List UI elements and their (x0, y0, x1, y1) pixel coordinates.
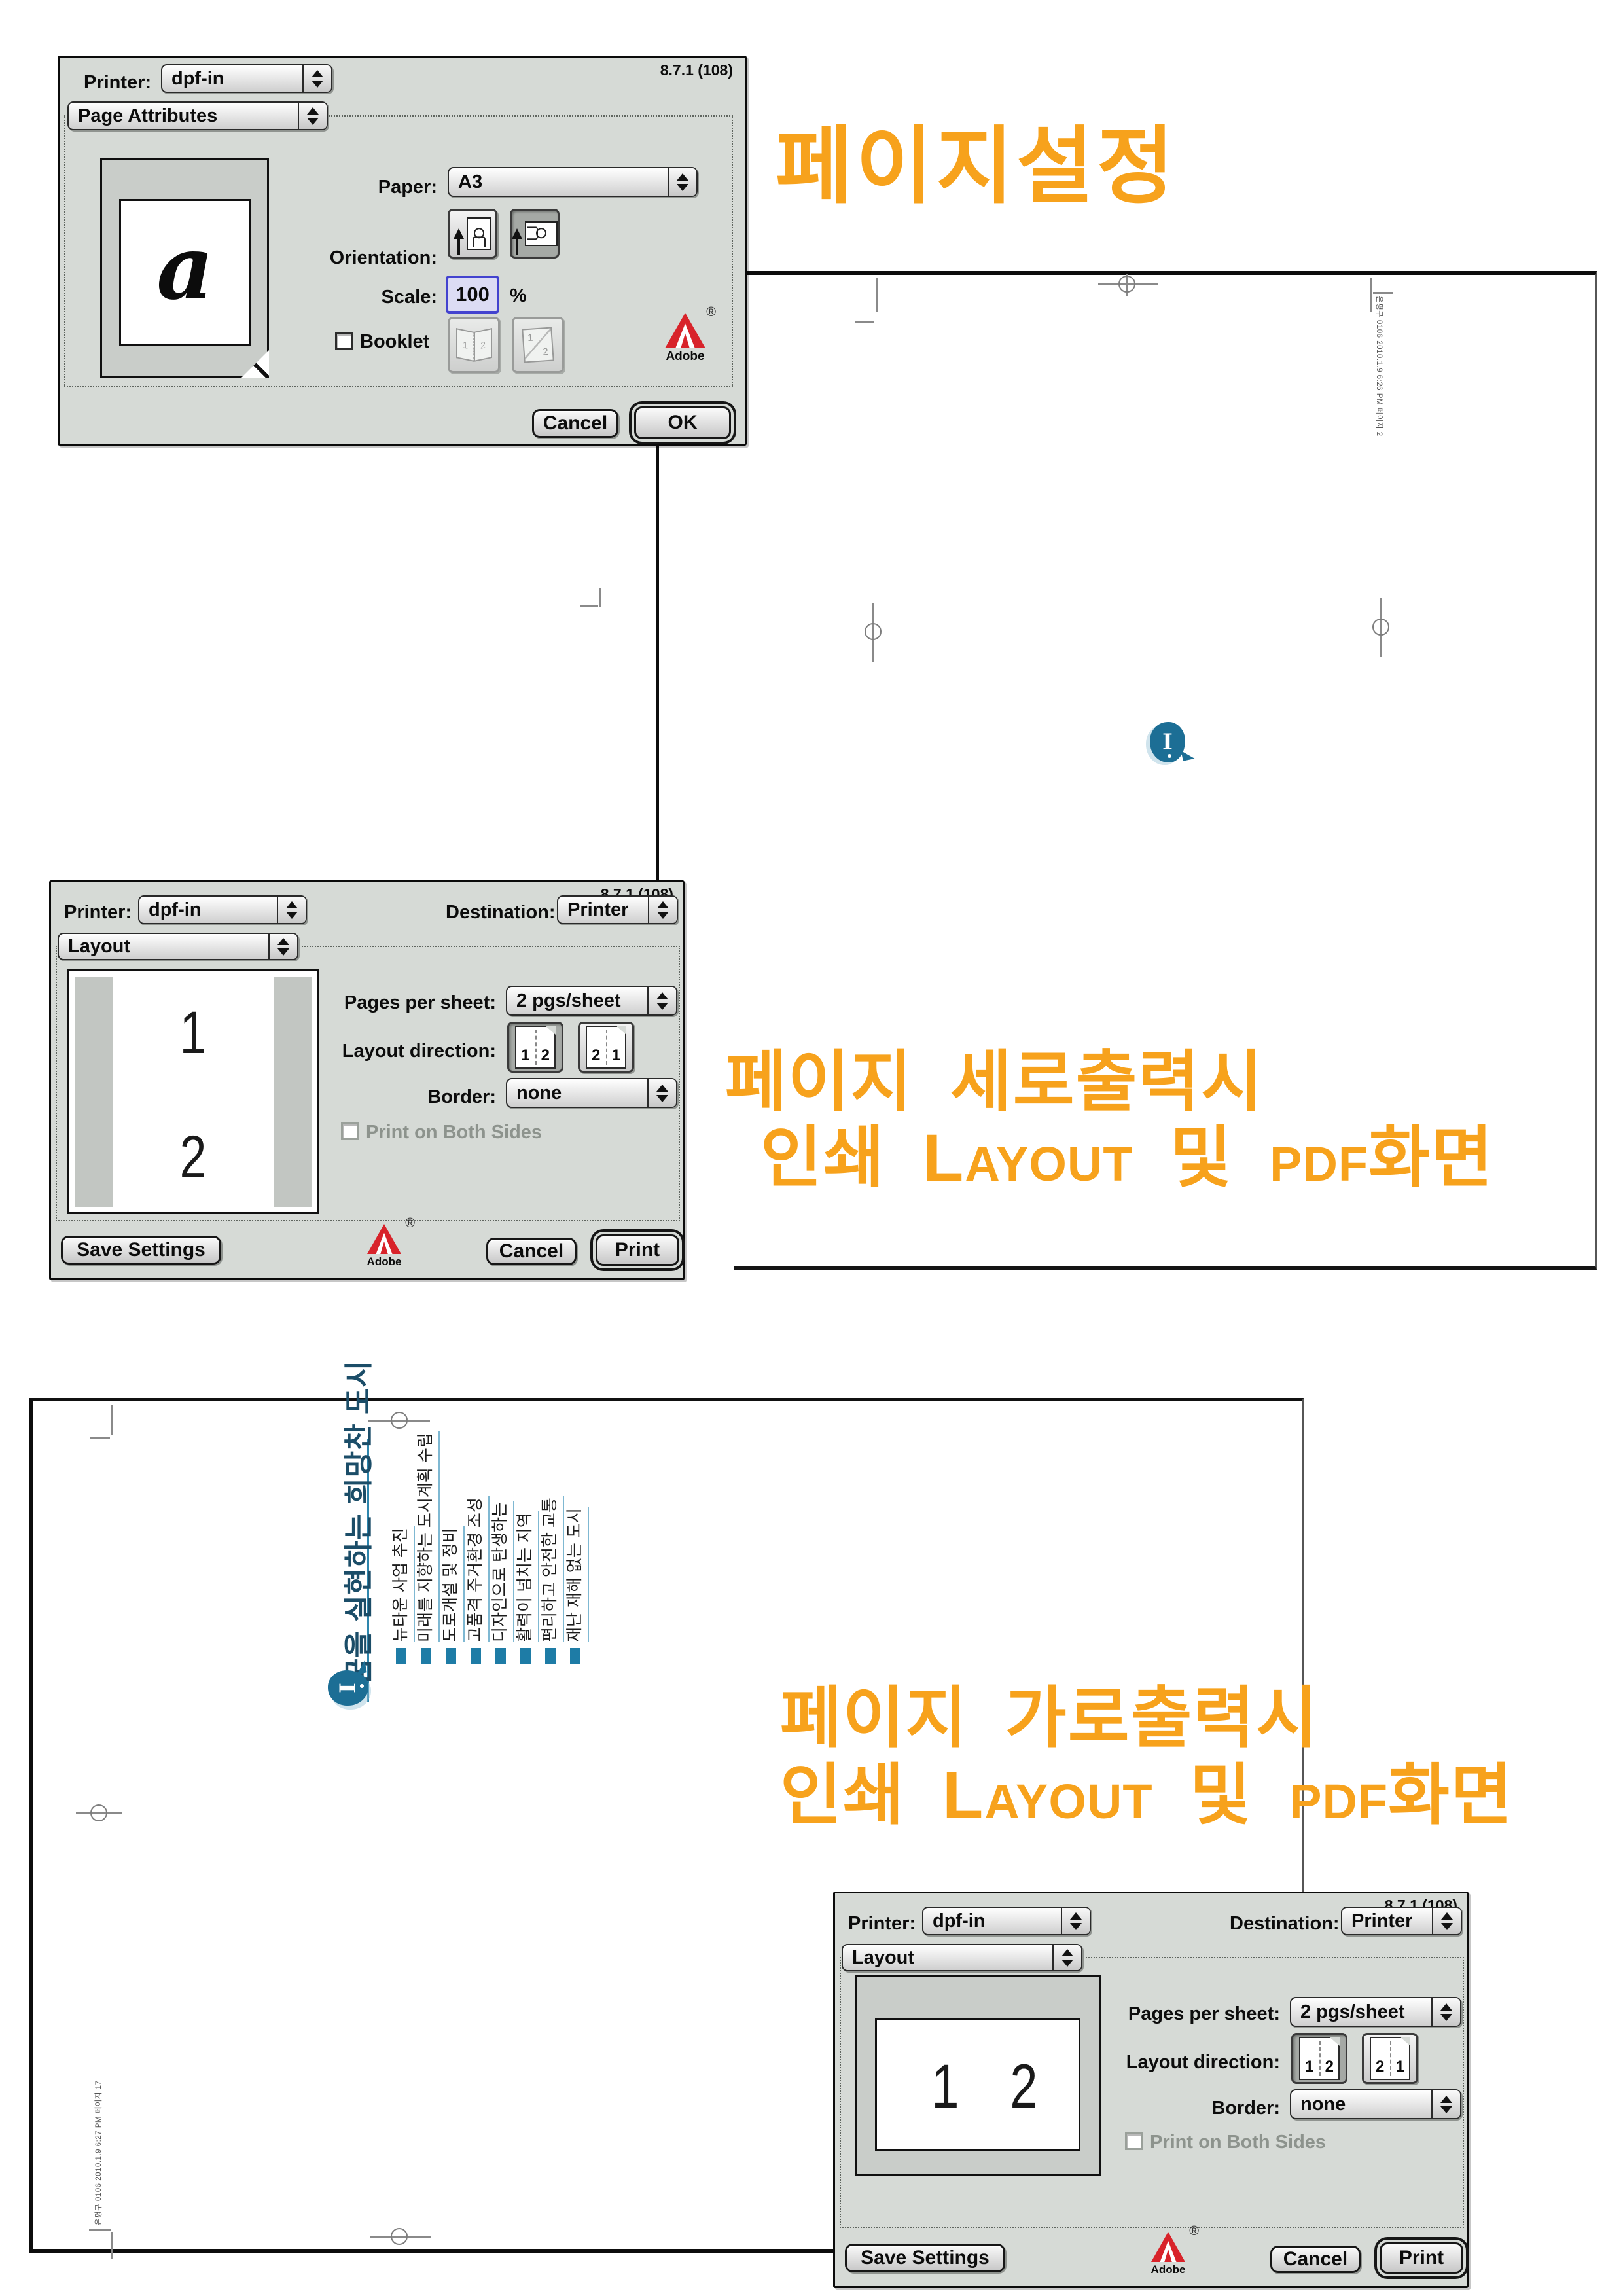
bullet-icon (495, 1648, 506, 1664)
pages-per-sheet-popup[interactable]: 2 pgs/sheet (506, 986, 677, 1016)
popup-stepper-icon (1431, 1998, 1460, 2026)
print-layout-dialog-portrait: 8.7.1 (108) Printer: dpf-in Destination:… (49, 880, 685, 1280)
print-both-sides-checkbox[interactable] (341, 1122, 359, 1140)
direction-12-icon: 12 (1299, 2037, 1340, 2080)
booklet-open-button[interactable]: 12 (448, 317, 500, 373)
section-popup[interactable]: Page Attributes (67, 101, 328, 130)
crop-tick-icon (89, 2229, 111, 2231)
orientation-landscape-button[interactable] (510, 209, 560, 259)
page-fold-icon (241, 350, 269, 378)
page-setup-dialog: 8.7.1 (108) Printer: dpf-in Page Attribu… (58, 56, 747, 446)
landscape-doc-icon (525, 221, 558, 246)
preview-page-number: 2 (129, 1123, 258, 1192)
scale-label: Scale: (357, 287, 437, 308)
orientation-label: Orientation: (329, 247, 437, 269)
paper-label: Paper: (321, 177, 437, 198)
popup-stepper-icon (1061, 1908, 1090, 1934)
direction-12-icon: 12 (515, 1026, 556, 1069)
adobe-mark-icon (665, 313, 705, 348)
bullet-icon (545, 1648, 556, 1664)
bullet-icon (471, 1648, 481, 1664)
bullet-icon (520, 1648, 531, 1664)
layout-preview: 1 2 (855, 1975, 1101, 2176)
destination-label: Destination: (1230, 1913, 1334, 1935)
scale-input[interactable]: 100 (446, 276, 499, 314)
save-settings-button[interactable]: Save Settings (61, 1236, 221, 1265)
annotation-line: 페이지 가로출력시 (780, 1683, 1319, 1753)
margin-bar (75, 977, 113, 1207)
popup-stepper-icon (647, 987, 676, 1014)
adobe-mark-icon (1151, 2232, 1185, 2262)
booklet-checkbox[interactable] (335, 332, 353, 350)
printer-label: Printer: (848, 1913, 916, 1935)
crop-tick-icon (90, 1437, 110, 1439)
bullet-icon (570, 1648, 580, 1664)
printer-label: Printer: (64, 902, 132, 924)
preview-page-number: 2 (1010, 2051, 1037, 2123)
preview-page-number: 1 (931, 2051, 959, 2123)
bullet-icon (446, 1648, 456, 1664)
version-label: 8.7.1 (108) (660, 62, 733, 79)
list-item: 편리하고 안전한 교통 (537, 1496, 564, 1664)
direction-21-icon: 21 (1370, 2037, 1410, 2080)
list-item: 고품격 주거환경 조성 (462, 1496, 490, 1664)
print-layout-dialog-landscape: 8.7.1 (108) Printer: dpf-in Destination:… (833, 1892, 1469, 2288)
document-title: 꿈을 실현하는 희망찬 도시 (335, 1360, 377, 1685)
layout-preview: 1 2 (67, 969, 319, 1214)
layout-direction-12-button[interactable]: 12 (1291, 2033, 1347, 2084)
adobe-mark-icon (367, 1224, 401, 1254)
popup-stepper-icon (1432, 1908, 1461, 1934)
portrait-doc-icon (467, 217, 491, 250)
print-both-sides-label: Print on Both Sides (1150, 2132, 1326, 2153)
preview-page-number: 1 (129, 999, 258, 1067)
bullet-icon (421, 1648, 431, 1664)
list-item: 활력이 넘치는 지역 (512, 1511, 539, 1664)
popup-stepper-icon (668, 168, 696, 196)
printer-popup[interactable]: dpf-in (138, 895, 307, 924)
preview-sheet: 1 2 (875, 2018, 1080, 2151)
cancel-button[interactable]: Cancel (486, 1238, 577, 1265)
registration-mark-icon (391, 2228, 408, 2245)
list-item: 뉴타운 사업 추진 (387, 1526, 415, 1664)
popup-stepper-icon (268, 934, 297, 959)
orientation-portrait-button[interactable] (448, 209, 497, 259)
crop-tick-icon (855, 321, 874, 323)
layout-direction-label: Layout direction: (326, 1041, 496, 1062)
cancel-button[interactable]: Cancel (532, 409, 618, 438)
layout-direction-label: Layout direction: (1110, 2052, 1280, 2073)
pages-per-sheet-label: Pages per sheet: (1107, 2003, 1280, 2025)
crop-tick-icon (1370, 278, 1372, 312)
annotation-line: 페이지 세로출력시 (725, 1047, 1264, 1117)
annotation-line: 인쇄 LAYOUT 및 PDF화면 (760, 1123, 1494, 1193)
crop-tick-icon (111, 1405, 113, 1435)
page: 은평구 0106 2010.1.9 6:26 PM 페이지 2 I 꿈을 실현하… (0, 0, 1623, 2296)
popup-stepper-icon (298, 103, 327, 129)
logo-letter: I (1162, 731, 1173, 753)
printer-label: Printer: (84, 72, 151, 94)
cancel-button[interactable]: Cancel (1270, 2246, 1361, 2273)
direction-21-icon: 21 (586, 1026, 626, 1069)
print-both-sides-label: Print on Both Sides (366, 1122, 542, 1143)
crop-tick-icon (599, 588, 601, 607)
booklet-fold-button[interactable]: 12 (512, 317, 564, 373)
layout-direction-12-button[interactable]: 12 (507, 1022, 563, 1073)
printer-popup[interactable]: dpf-in (922, 1907, 1091, 1935)
border-popup[interactable]: none (1290, 2089, 1461, 2119)
annotation-line: 인쇄 LAYOUT 및 PDF화면 (780, 1761, 1514, 1831)
print-button[interactable]: Print (596, 1234, 679, 1266)
registration-mark-icon (1118, 276, 1135, 293)
save-settings-button[interactable]: Save Settings (845, 2244, 1005, 2272)
section-popup[interactable]: Layout (58, 933, 298, 960)
popup-stepper-icon (647, 1079, 676, 1107)
crop-tick-icon (111, 2232, 113, 2259)
slug-line: 은평구 0106 2010.1.9 6:26 PM 페이지 2 (1374, 296, 1385, 437)
registration-mark-icon (865, 623, 882, 640)
up-arrow-icon (512, 228, 522, 239)
annotation-heading: 페이지설정 (776, 123, 1177, 211)
list-item: 재난 재해 없는 도시 (562, 1507, 589, 1664)
pages-per-sheet-label: Pages per sheet: (323, 992, 496, 1014)
layout-direction-21-button[interactable]: 21 (1362, 2033, 1418, 2084)
scale-unit: % (510, 285, 527, 307)
list-item: 도로개설 및 정비 (437, 1526, 465, 1664)
crop-tick-icon (1373, 292, 1393, 294)
slug-line: 은평구 0106 2010.1.9 6:27 PM 페이지 17 (93, 2081, 103, 2225)
list-item: 디자인으로 탄생하는 (487, 1501, 514, 1664)
preview-letter: a (156, 215, 213, 319)
margin-bar (274, 977, 312, 1207)
print-both-sides-checkbox[interactable] (1125, 2132, 1143, 2150)
destination-label: Destination: (446, 902, 550, 924)
popup-stepper-icon (302, 65, 331, 92)
crop-tick-icon (580, 605, 598, 607)
layout-direction-21-button[interactable]: 21 (578, 1022, 634, 1073)
popup-stepper-icon (1052, 1945, 1081, 1970)
up-arrow-icon (454, 228, 464, 239)
adobe-logo: ® Adobe (665, 313, 705, 364)
list-item: 미래를 지향하는 도시계획 수립 (412, 1431, 440, 1664)
registration-mark-icon (90, 1804, 107, 1821)
pages-per-sheet-popup[interactable]: 2 pgs/sheet (1290, 1997, 1461, 2027)
paper-popup[interactable]: A3 (448, 167, 698, 197)
document-logo-icon: I (1150, 722, 1185, 762)
bullet-icon (396, 1648, 406, 1664)
printer-popup[interactable]: dpf-in (161, 64, 332, 93)
registration-mark-icon (391, 1412, 408, 1429)
paper-preview: a (100, 158, 269, 378)
border-popup[interactable]: none (506, 1078, 677, 1108)
border-label: Border: (368, 1086, 496, 1108)
popup-stepper-icon (277, 897, 306, 923)
destination-popup[interactable]: Printer (557, 895, 678, 924)
crop-tick-icon (876, 278, 878, 312)
connector-line (656, 437, 659, 882)
folded-sheet-icon: 12 (522, 327, 554, 363)
booklet-label: Booklet (360, 331, 429, 353)
open-book-icon: 12 (456, 330, 492, 360)
section-popup[interactable]: Layout (842, 1944, 1082, 1971)
adobe-logo: ® Adobe (1148, 2232, 1188, 2276)
print-button[interactable]: Print (1380, 2242, 1463, 2274)
border-label: Border: (1152, 2098, 1280, 2119)
popup-stepper-icon (648, 897, 677, 923)
ok-button[interactable]: OK (634, 406, 731, 439)
popup-stepper-icon (1431, 2090, 1460, 2118)
registration-mark-icon (1372, 619, 1389, 636)
destination-popup[interactable]: Printer (1341, 1907, 1462, 1935)
adobe-logo: ® Adobe (364, 1224, 404, 1268)
